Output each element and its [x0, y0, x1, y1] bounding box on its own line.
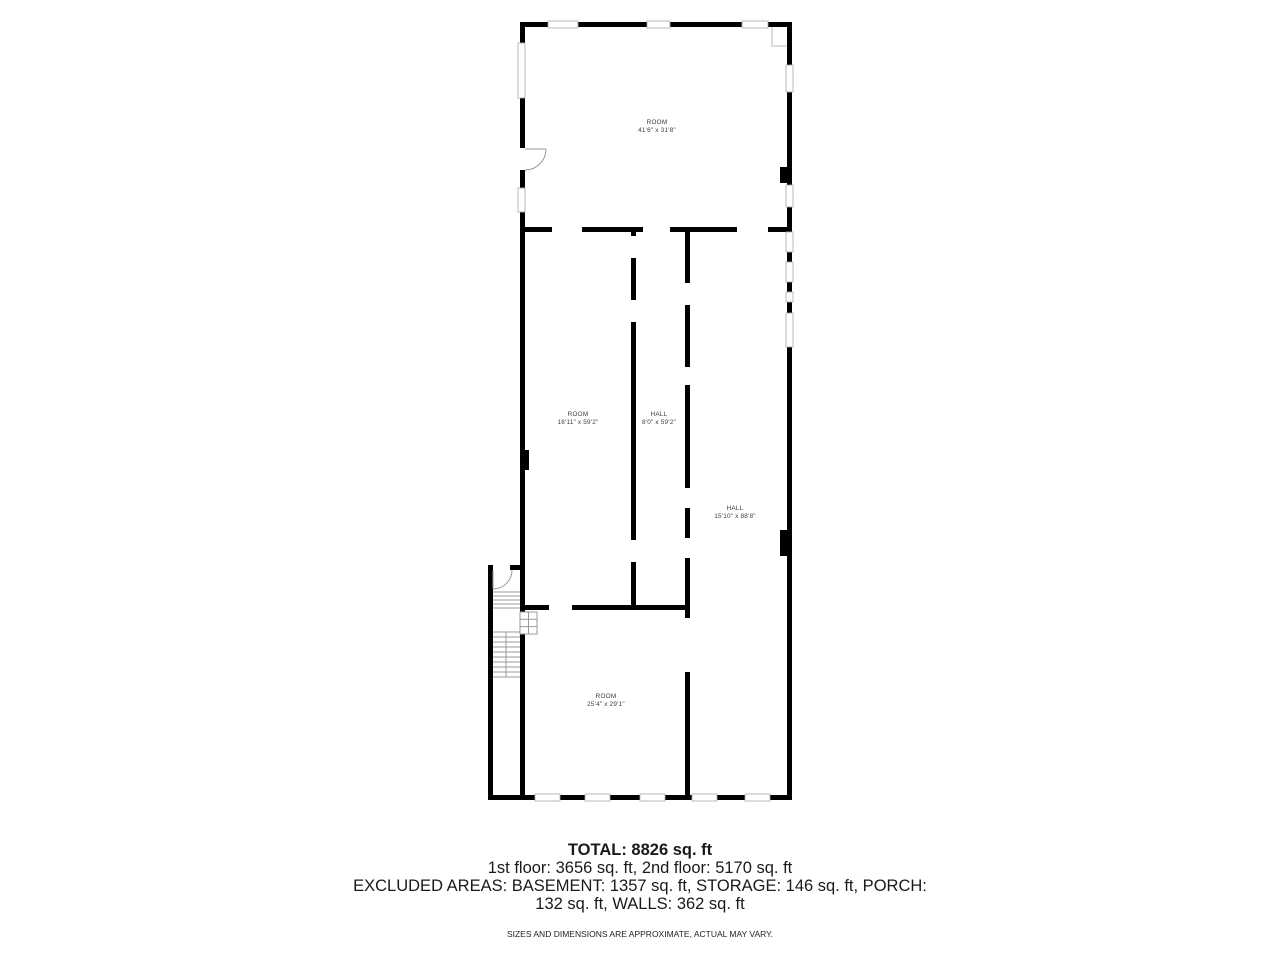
staircase	[493, 592, 520, 677]
room-label-top: ROOM 41'6" x 31'8"	[638, 119, 676, 135]
floor-plan-drawing	[0, 0, 1280, 960]
area-summary: TOTAL: 8826 sq. ft 1st floor: 3656 sq. f…	[0, 841, 1280, 939]
room-dimensions: 25'4" x 29'1"	[587, 701, 625, 709]
outer-walls	[488, 22, 792, 800]
room-dimensions: 15'10" x 88'8"	[714, 513, 755, 521]
hall-label-right: HALL 15'10" x 88'8"	[714, 505, 755, 521]
room-dimensions: 41'6" x 31'8"	[638, 127, 676, 135]
disclaimer-text: SIZES AND DIMENSIONS ARE APPROXIMATE, AC…	[0, 929, 1280, 939]
room-name: HALL	[714, 505, 755, 513]
room-name: ROOM	[587, 693, 625, 701]
room-label-middle: ROOM 16'11" x 59'2"	[558, 411, 599, 427]
hall-label-middle: HALL 8'0" x 59'2"	[642, 411, 676, 427]
room-name: HALL	[642, 411, 676, 419]
room-dimensions: 16'11" x 59'2"	[558, 419, 599, 427]
under-stair-storage	[520, 612, 537, 634]
excluded-areas-text: EXCLUDED AREAS: BASEMENT: 1357 sq. ft, S…	[340, 877, 940, 913]
floor-areas-text: 1st floor: 3656 sq. ft, 2nd floor: 5170 …	[0, 859, 1280, 877]
corner-column	[772, 27, 787, 46]
room-label-bottom: ROOM 25'4" x 29'1"	[587, 693, 625, 709]
door-arc	[525, 149, 546, 170]
floor-plan-page: ROOM 41'6" x 31'8" ROOM 16'11" x 59'2" H…	[0, 0, 1280, 960]
room-dimensions: 8'0" x 59'2"	[642, 419, 676, 427]
room-name: ROOM	[638, 119, 676, 127]
door-arc	[493, 570, 512, 589]
total-area-text: TOTAL: 8826 sq. ft	[0, 841, 1280, 859]
room-name: ROOM	[558, 411, 599, 419]
door-swings	[493, 149, 546, 589]
